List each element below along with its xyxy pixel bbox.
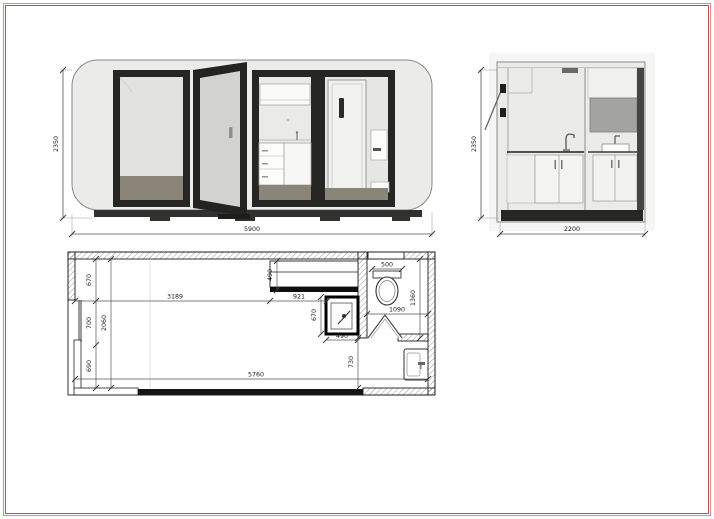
plan-toilet [373,271,401,305]
interior-floor [259,185,311,200]
drawing-sheet: 2350 5900 [0,0,714,519]
mirror-panel [590,98,637,132]
dim-counter-depth: 490 [267,269,274,281]
basin-faucet [418,362,425,365]
pod-foot [392,217,410,221]
plan-kitchen-sink [326,297,358,334]
end-wall-section [637,68,644,210]
wall-right [428,252,435,395]
door-handle [229,127,233,138]
dim-zone-top: 670 [86,274,93,286]
wall-bottom-glass [74,388,138,395]
wall-left-glass [78,300,82,342]
wall-bottom-doors [138,389,363,396]
dim-side-depth: 2200 [564,226,580,233]
pod-section-base [501,210,643,221]
plan-washbasin [404,349,428,380]
dim-front-height: 2350 [53,136,60,152]
drawing-canvas: 2350 5900 [0,0,714,519]
door-handle [373,148,381,151]
dim-living-length: 3189 [167,294,183,301]
dim-sink-width: 490 [336,333,348,340]
front-elevation-view: 2350 5900 [53,60,435,237]
dim-zone-bottom: 690 [86,360,93,372]
wall-bath-bottom [398,334,428,341]
pod-foot [150,217,170,221]
bathroom-fixture [371,130,387,160]
wall-bottom-right [363,388,435,395]
bathroom-basin [602,144,629,152]
open-door [193,62,250,219]
wall-cabinet [260,84,310,105]
dim-side-height: 2350 [471,136,478,152]
shower-door-handle [339,98,344,118]
sink-cabinet [284,143,311,185]
pod-foot [320,217,340,221]
floor-plan-view: 670 700 690 2060 3189 921 490 [68,252,435,396]
wall-socket [287,119,290,122]
dim-front-length: 5900 [244,226,260,233]
ceiling-vent [562,68,578,73]
dim-interior-length: 5760 [248,372,264,379]
interior-floor [325,188,388,200]
dim-bathroom-depth: 1360 [410,290,417,306]
wall-left-top [68,252,75,300]
glass-panel-4 [318,70,395,207]
plan-kitchen-counter [270,261,358,292]
dim-sink-depth: 670 [311,309,318,321]
dim-entry-depth: 730 [348,356,355,368]
wall-left-thin [74,340,81,390]
dim-toilet-width: 500 [381,262,393,269]
window-above-toilet [368,252,404,259]
dim-interior-depth: 2060 [101,315,108,331]
interior-floor [120,176,183,200]
shower-enclosure [328,80,366,196]
dim-zone-mid: 700 [86,317,93,329]
glass-panel-1 [113,70,190,207]
side-elevation-view: 2350 2200 [471,53,655,237]
glass-panel-3 [252,70,318,207]
dim-bathroom-width: 1090 [389,307,405,314]
dim-kitchen-length: 921 [293,294,305,301]
pod-base [94,210,422,217]
plan-bathroom-door [368,315,402,338]
